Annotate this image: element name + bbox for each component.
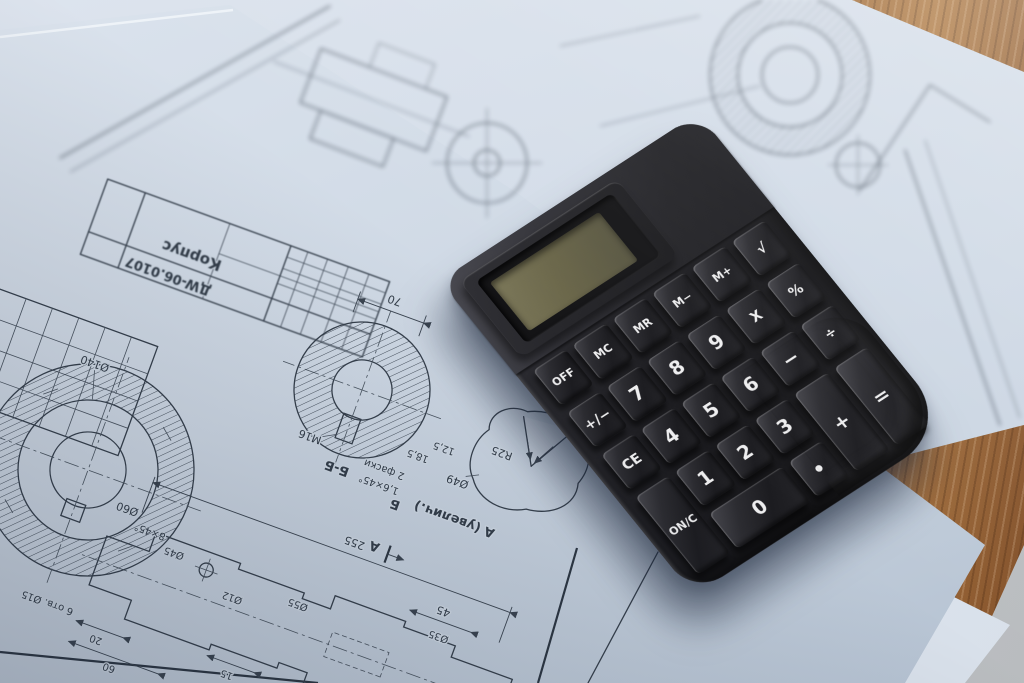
key-label: MR xyxy=(631,316,656,337)
key-label: OFF xyxy=(549,366,578,389)
key-label: = xyxy=(868,383,895,409)
key-label: 2 xyxy=(733,440,758,464)
photo-scene: Корпус ДW-06.0107 70 xyxy=(0,0,1024,683)
key-label: ON/C xyxy=(666,512,700,539)
key-label: M− xyxy=(670,290,695,311)
key-label: 9 xyxy=(704,330,729,354)
key-label: 6 xyxy=(738,372,763,396)
key-label: % xyxy=(785,281,807,301)
key-label: MC xyxy=(591,341,615,362)
key-label: M+ xyxy=(710,264,735,285)
key-label: 1 xyxy=(693,466,718,490)
key-label: 8 xyxy=(665,356,690,380)
key-label: 3 xyxy=(773,414,798,438)
key-label: • xyxy=(807,457,831,481)
key-label: CE xyxy=(618,450,645,473)
key-label: +/− xyxy=(581,406,615,434)
key-label: X xyxy=(747,307,766,325)
key-label: 5 xyxy=(699,398,724,422)
key-label: 7 xyxy=(625,382,650,406)
key-label: ÷ xyxy=(820,323,840,342)
key-label: + xyxy=(828,409,855,435)
key-label: − xyxy=(777,346,804,372)
key-label: 4 xyxy=(659,424,684,448)
key-label: √ xyxy=(753,240,771,258)
key-label: 0 xyxy=(747,495,772,519)
